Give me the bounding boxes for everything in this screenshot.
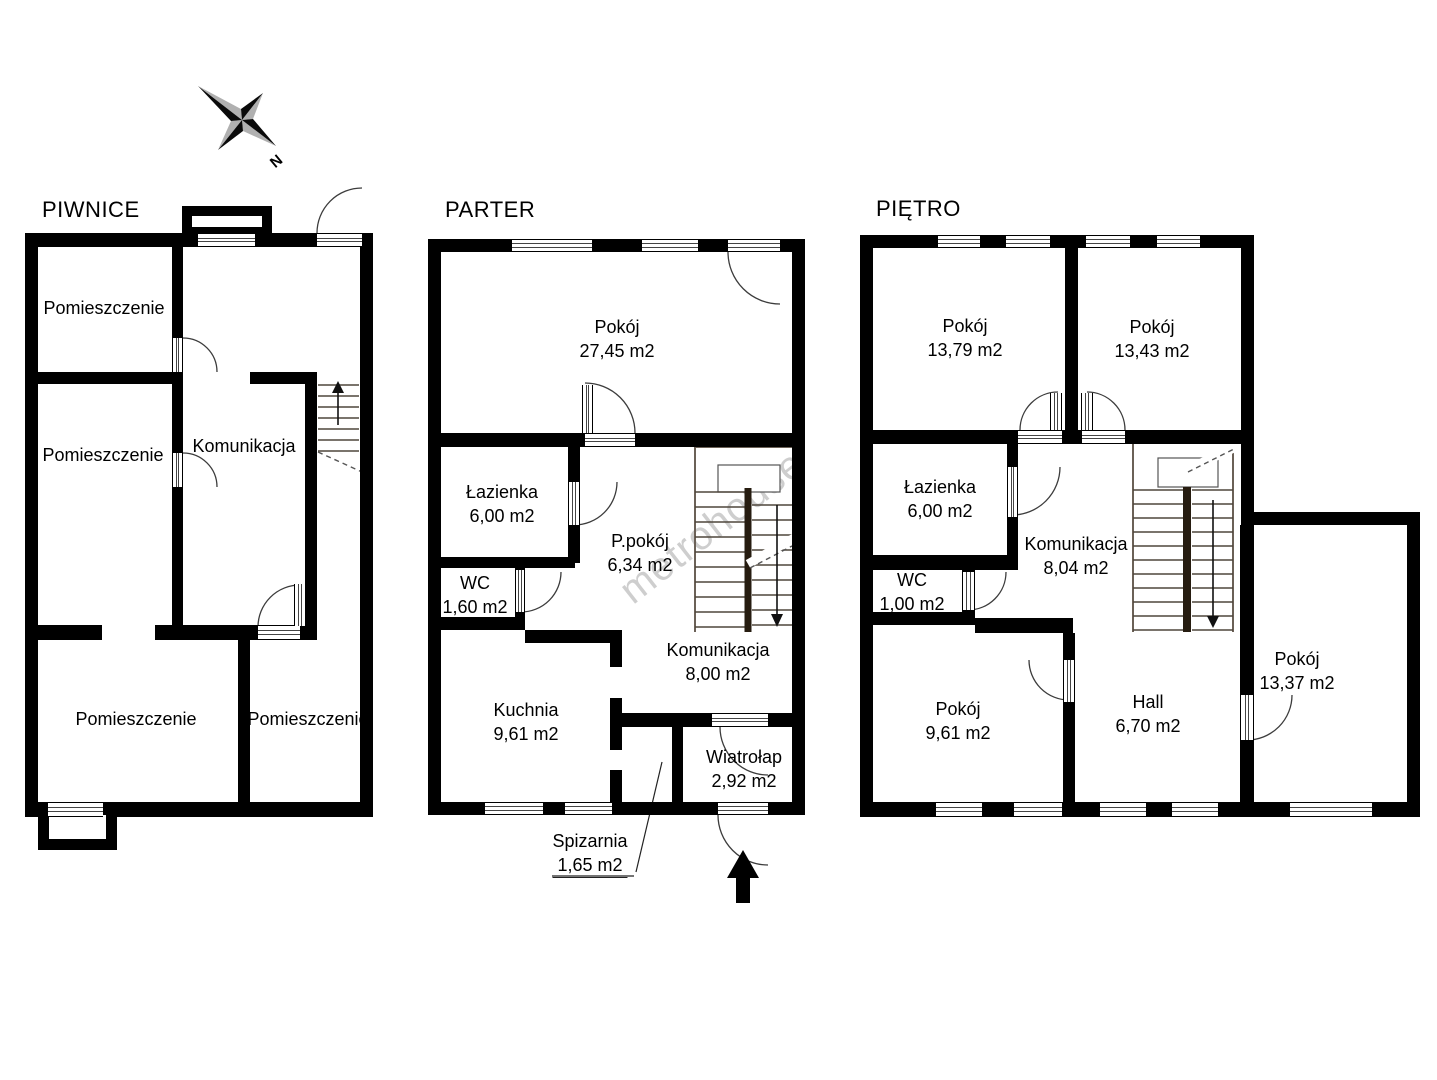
wall <box>25 372 183 384</box>
door-arc <box>317 188 362 233</box>
wall <box>25 233 38 817</box>
door-opening <box>1007 467 1018 517</box>
window <box>1290 802 1372 817</box>
door-arc <box>718 815 768 865</box>
door-leaf <box>1081 393 1093 430</box>
stair-enclosure <box>1133 444 1233 632</box>
down-arrow-icon <box>771 614 783 627</box>
wall <box>428 557 575 568</box>
window <box>642 239 698 252</box>
room-label: Hall6,70 m2 <box>1115 690 1180 738</box>
door-arc <box>728 252 780 304</box>
room-label: Komunikacja8,04 m2 <box>1024 532 1127 580</box>
door-opening <box>1240 695 1254 740</box>
up-arrow-icon <box>332 381 344 393</box>
window <box>1014 802 1062 817</box>
wall <box>792 239 805 815</box>
door-opening <box>568 482 580 525</box>
floor-title: PIĘTRO <box>876 196 961 222</box>
floor-title: PIWNICE <box>42 197 140 223</box>
floor-plan-canvas: metrohouse <box>0 0 1437 1080</box>
window <box>938 235 980 248</box>
compass-icon: N <box>198 86 286 172</box>
door-opening <box>712 713 768 727</box>
wall <box>1063 633 1075 805</box>
room-label: Komunikacja <box>192 434 295 458</box>
compass-north-label: N <box>267 152 286 172</box>
window <box>936 802 982 817</box>
door-arc <box>521 572 561 612</box>
wall <box>1241 512 1420 525</box>
wall <box>428 239 441 815</box>
wall <box>672 727 683 802</box>
entrance-arrow-icon <box>727 850 759 903</box>
window <box>1086 235 1130 248</box>
watermark: metrohouse <box>603 434 822 620</box>
wall-opening <box>610 750 622 770</box>
stairs-pietro <box>1133 444 1238 632</box>
door-opening <box>172 338 183 372</box>
room-label: Pomieszczenie <box>42 443 163 467</box>
room-label: Łazienka6,00 m2 <box>466 480 538 528</box>
wall <box>1065 248 1078 430</box>
door-arc <box>183 453 217 487</box>
wall <box>622 713 683 727</box>
room-label: Pokój13,43 m2 <box>1114 315 1189 363</box>
door-opening <box>1082 430 1125 444</box>
room-label: Pokój13,79 m2 <box>927 314 1002 362</box>
room-label: Łazienka6,00 m2 <box>904 475 976 523</box>
room-label: Pomieszczenie <box>247 707 368 731</box>
door-opening <box>962 572 975 610</box>
window <box>1006 235 1050 248</box>
window <box>1157 235 1200 248</box>
room-label: Pokój9,61 m2 <box>925 697 990 745</box>
down-arrow-icon <box>1207 616 1219 628</box>
door-opening <box>728 239 780 252</box>
stair-break-dash <box>750 546 792 568</box>
stair-break-dash <box>318 452 362 472</box>
room-label: Komunikacja8,00 m2 <box>666 638 769 686</box>
wall <box>525 630 622 643</box>
door-opening <box>258 625 300 640</box>
room-label: WC1,00 m2 <box>879 568 944 616</box>
wall <box>1241 235 1254 525</box>
room-label: Spizarnia1,65 m2 <box>552 829 627 878</box>
door-leaf <box>582 385 593 433</box>
door-opening <box>1063 660 1075 702</box>
wall-opening <box>610 667 622 698</box>
wall <box>860 235 873 815</box>
door-opening <box>317 233 362 247</box>
wall <box>305 383 317 640</box>
stair-steps <box>1133 490 1183 630</box>
door-arc <box>574 482 617 525</box>
stair-break <box>1186 446 1238 470</box>
stair-break <box>748 538 794 564</box>
room-label: P.pokój6,34 m2 <box>607 529 672 577</box>
window <box>565 802 612 815</box>
wall-opening <box>102 625 155 640</box>
window <box>48 802 103 817</box>
entrance-door-opening <box>718 802 768 815</box>
wall-bump <box>38 815 117 850</box>
window <box>1172 802 1218 817</box>
stair-landing <box>1158 458 1218 487</box>
door-leaf <box>294 584 306 626</box>
leader-line <box>636 762 662 872</box>
window <box>512 239 592 252</box>
wall <box>1407 512 1420 815</box>
wall <box>172 384 183 625</box>
room-label: Pokój13,37 m2 <box>1259 647 1334 695</box>
door-opening <box>1018 430 1062 444</box>
room-label: Wiatrołap2,92 m2 <box>706 745 782 793</box>
stair-steps <box>752 505 792 625</box>
room-label: WC1,60 m2 <box>442 571 507 619</box>
door-arc <box>1012 467 1060 515</box>
window <box>485 802 543 815</box>
door-leaf <box>1050 393 1062 430</box>
window <box>198 233 255 247</box>
stair-break-dash <box>1188 449 1234 472</box>
wall <box>1240 525 1254 802</box>
door-opening <box>585 433 635 447</box>
stair-steps <box>318 385 359 451</box>
room-label: Pomieszczenie <box>75 707 196 731</box>
door-arc <box>183 338 217 372</box>
window <box>1100 802 1146 817</box>
door-opening <box>172 453 183 487</box>
wall <box>975 618 1073 633</box>
room-label: Kuchnia9,61 m2 <box>493 698 558 746</box>
stair-steps <box>1192 490 1233 630</box>
stairs-piwnice <box>318 381 362 472</box>
door-opening <box>515 570 525 612</box>
room-label: Pomieszczenie <box>43 296 164 320</box>
room-label: Pokój27,45 m2 <box>579 315 654 363</box>
floor-title: PARTER <box>445 197 535 223</box>
